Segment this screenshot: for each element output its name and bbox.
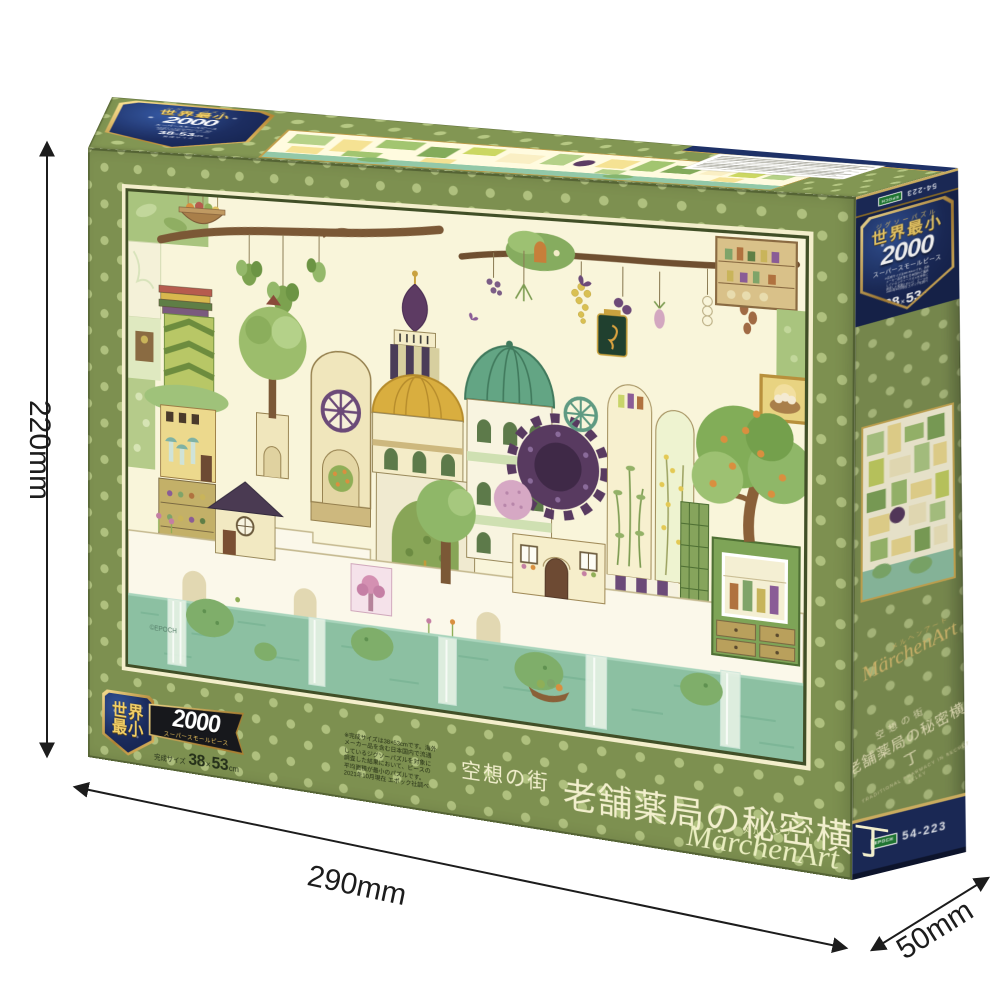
box-side-face: 54-223 EPOCH ジグソーパズル 世界最小 2000 スーパースモールピ… <box>852 168 966 880</box>
brand-latin: MärchenArt <box>846 611 973 693</box>
epoch-logo: EPOCH <box>878 191 902 206</box>
badge-claim-line2: 最小 <box>112 718 144 740</box>
height-label: 220mm <box>23 400 56 500</box>
puzzle-thumbnail-side <box>861 402 956 603</box>
product-photo: ジグソーパズル 世界最小 2000 スーパースモールピース ※完成サイズは38×… <box>0 0 1000 1000</box>
artwork-frame: ©EPOCH <box>122 184 814 771</box>
box-front-face: ©EPOCH 世界 最小 2000 スーパースモールピース 完成サイズ 38× <box>88 148 856 880</box>
world-smallest-badge-front: 世界 最小 2000 スーパースモールピース 完成サイズ 38× 53cm <box>102 689 332 795</box>
width-label: 290mm <box>305 859 410 912</box>
item-code: 54-223 <box>906 181 936 198</box>
title-prefix: 空想の街 <box>461 753 550 797</box>
depth-arrow <box>872 878 988 950</box>
world-smallest-badge-top: ジグソーパズル 世界最小 2000 スーパースモールピース ※完成サイズは38×… <box>99 99 278 152</box>
item-code: 54-223 <box>902 819 947 843</box>
fine-print: ※完成サイズは38×53cmです。海外メーカー品を含む日本国内で流通 しているジ… <box>344 733 460 797</box>
depth-label: 50mm <box>891 894 979 966</box>
puzzle-artwork: ©EPOCH <box>125 188 809 766</box>
brand-logo-side: メルヘンアート MärchenArt <box>844 601 974 692</box>
